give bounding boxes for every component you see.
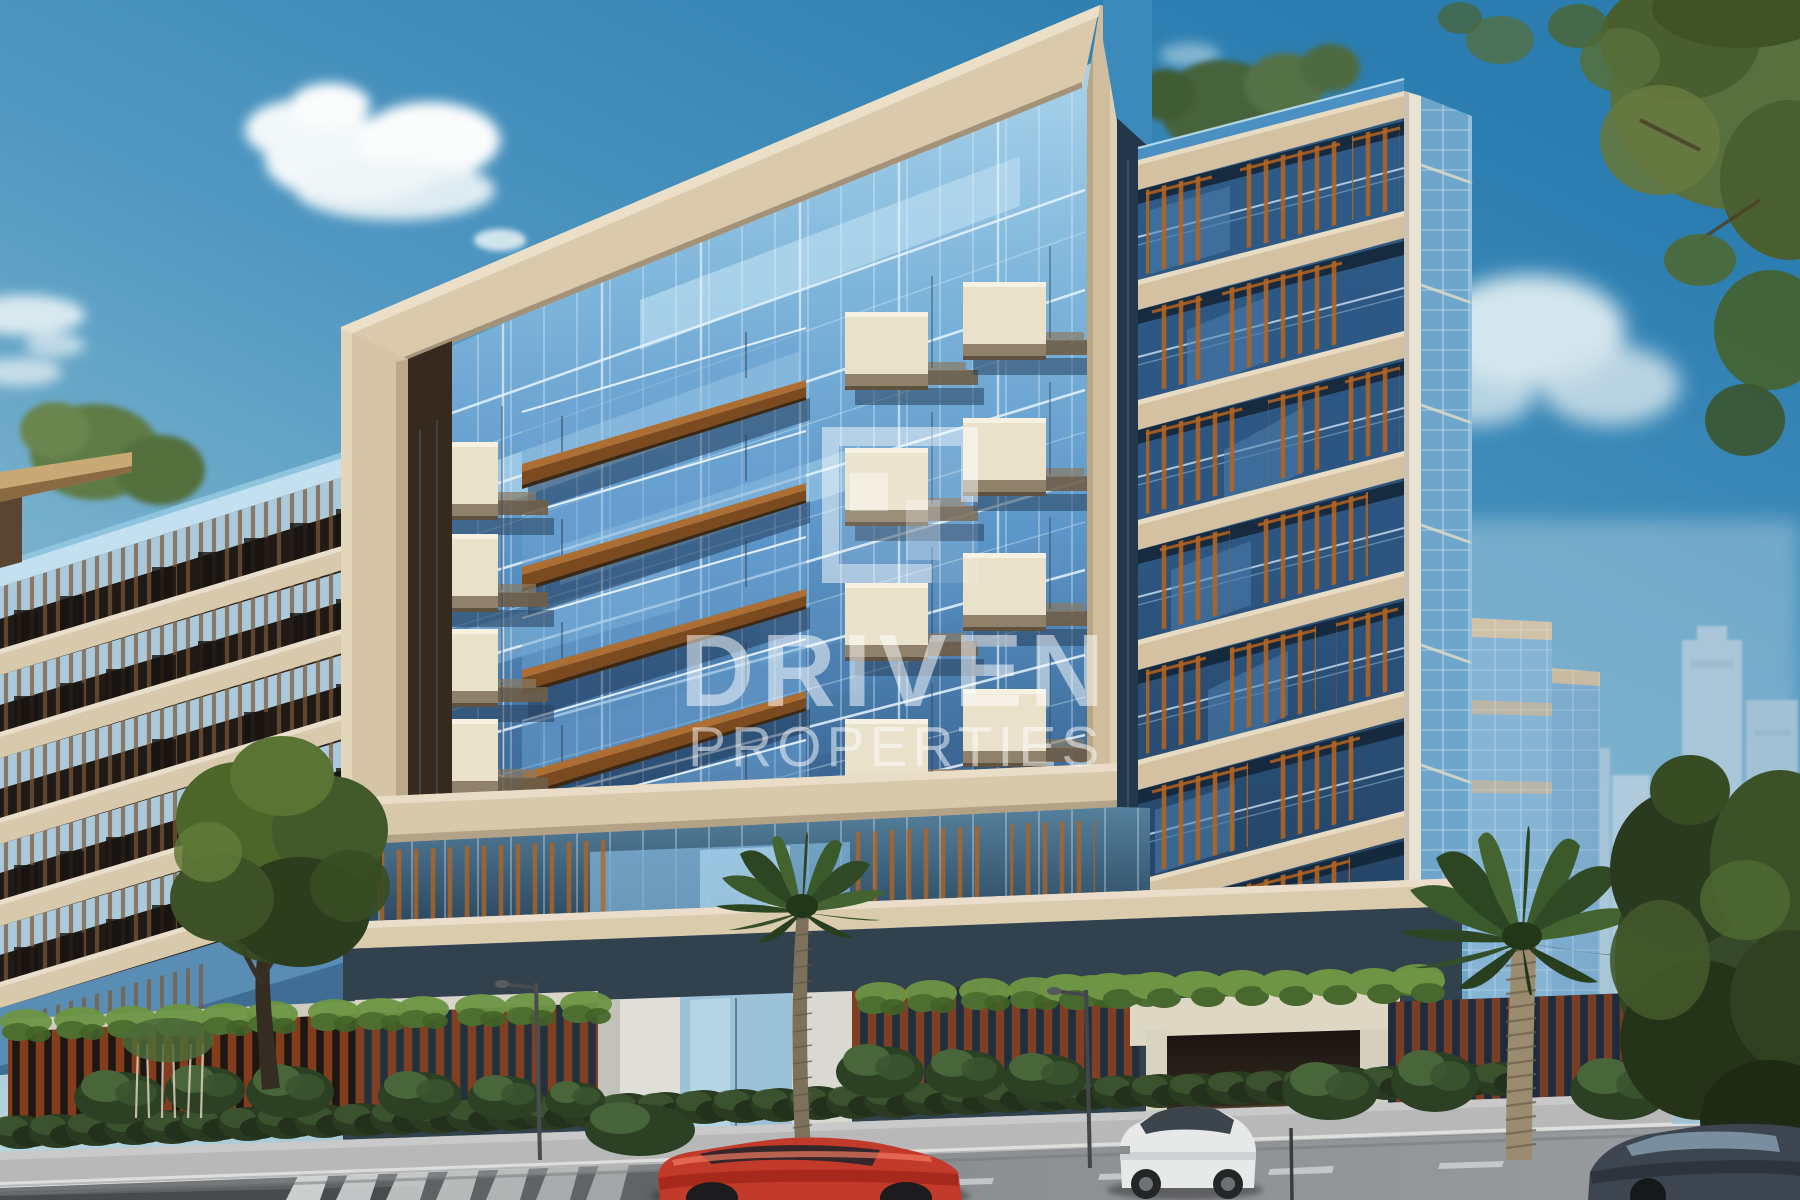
svg-text:PROPERTIES: PROPERTIES — [688, 715, 1104, 779]
svg-text:DRIVEN: DRIVEN — [680, 613, 1111, 728]
